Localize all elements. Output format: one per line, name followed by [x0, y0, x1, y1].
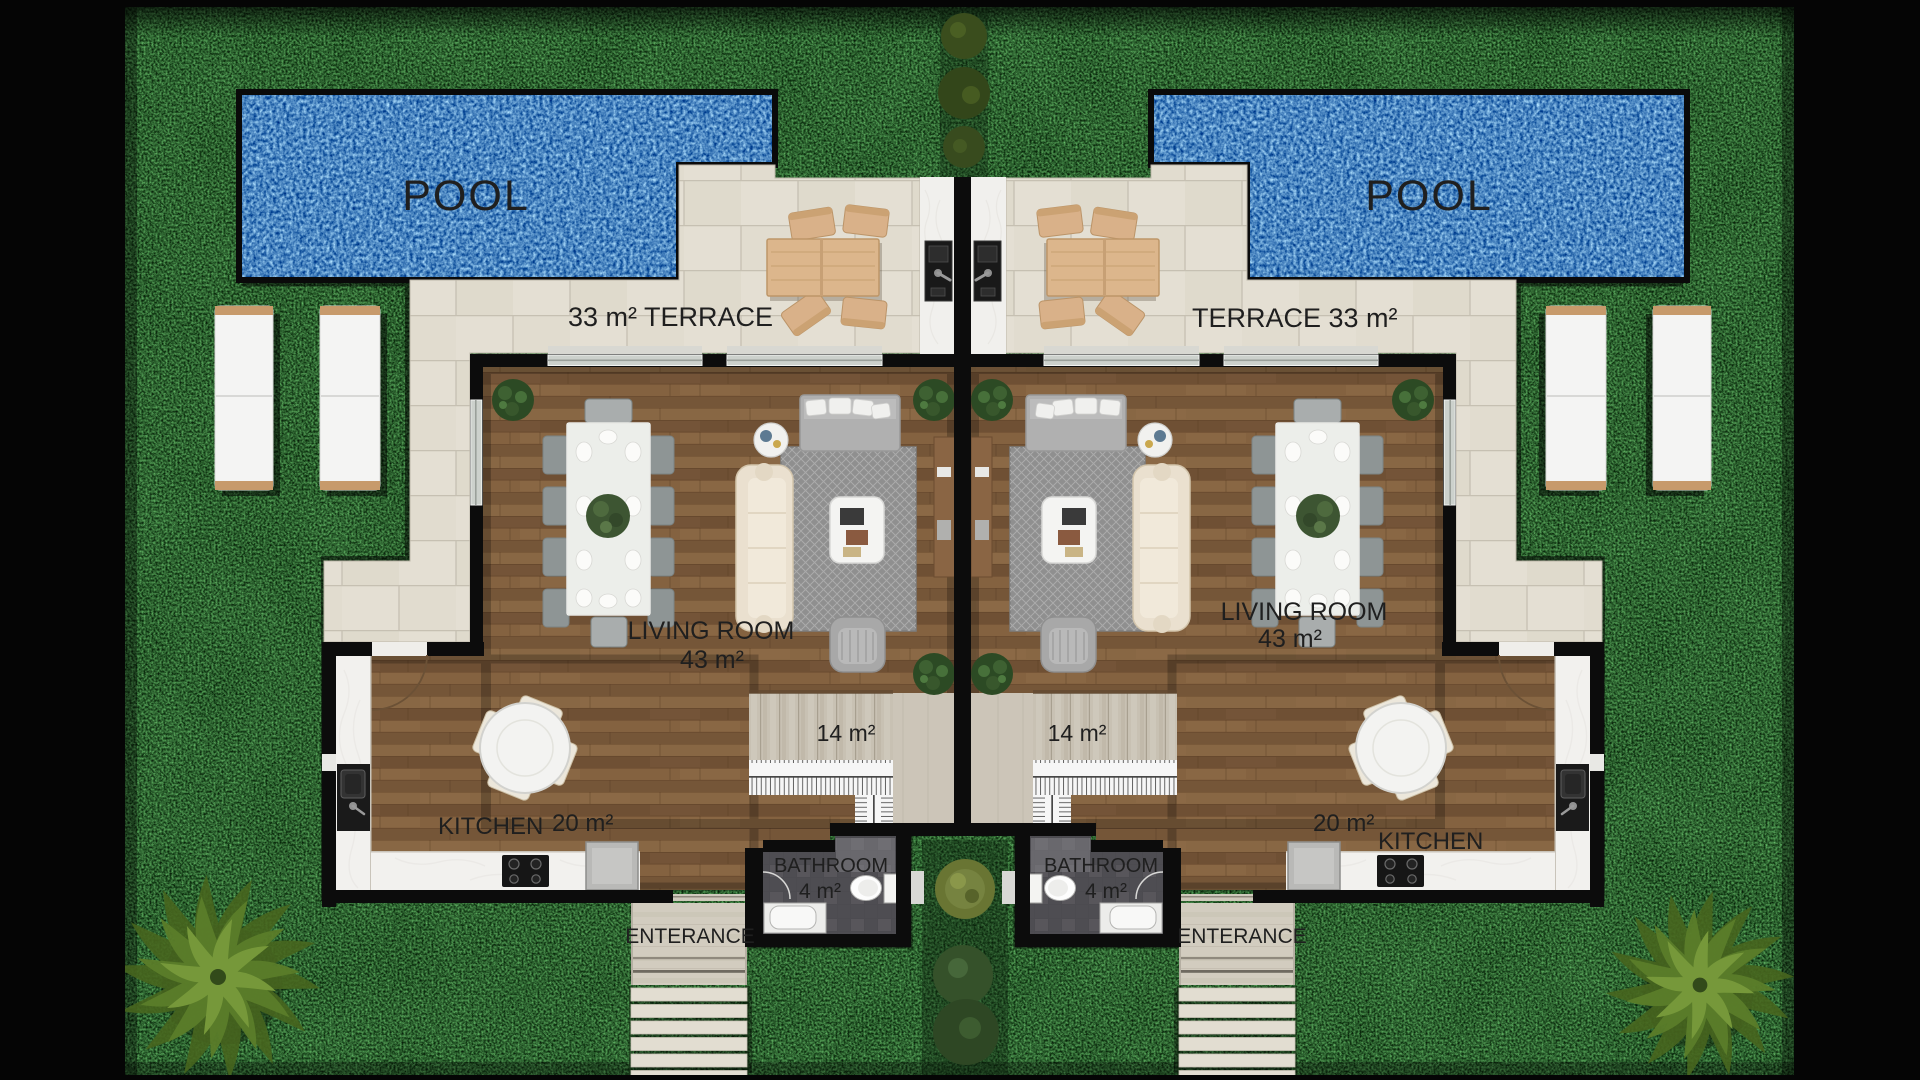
svg-text:ENTERANCE: ENTERANCE [625, 925, 755, 948]
svg-text:20 m²: 20 m² [1313, 810, 1374, 837]
svg-text:43 m²: 43 m² [1258, 625, 1322, 653]
svg-text:4 m²: 4 m² [799, 880, 841, 903]
svg-text:4 m²: 4 m² [1085, 880, 1127, 903]
svg-text:33 m² TERRACE: 33 m² TERRACE [568, 302, 773, 332]
svg-text:14 m²: 14 m² [817, 720, 876, 746]
svg-text:20 m²: 20 m² [552, 810, 613, 837]
svg-text:LIVING ROOM: LIVING ROOM [1221, 598, 1388, 626]
svg-text:14 m²: 14 m² [1048, 720, 1107, 746]
svg-text:BATHROOM: BATHROOM [1044, 855, 1158, 877]
svg-text:ENTERANCE: ENTERANCE [1177, 925, 1307, 948]
svg-text:KITCHEN: KITCHEN [1378, 828, 1483, 855]
svg-text:TERRACE 33 m²: TERRACE 33 m² [1192, 303, 1398, 333]
svg-text:POOL: POOL [402, 172, 530, 220]
svg-text:POOL: POOL [1365, 172, 1493, 220]
svg-text:LIVING ROOM: LIVING ROOM [628, 617, 795, 645]
svg-text:43 m²: 43 m² [680, 646, 744, 674]
svg-text:KITCHEN: KITCHEN [438, 813, 543, 840]
svg-text:BATHROOM: BATHROOM [774, 855, 888, 877]
